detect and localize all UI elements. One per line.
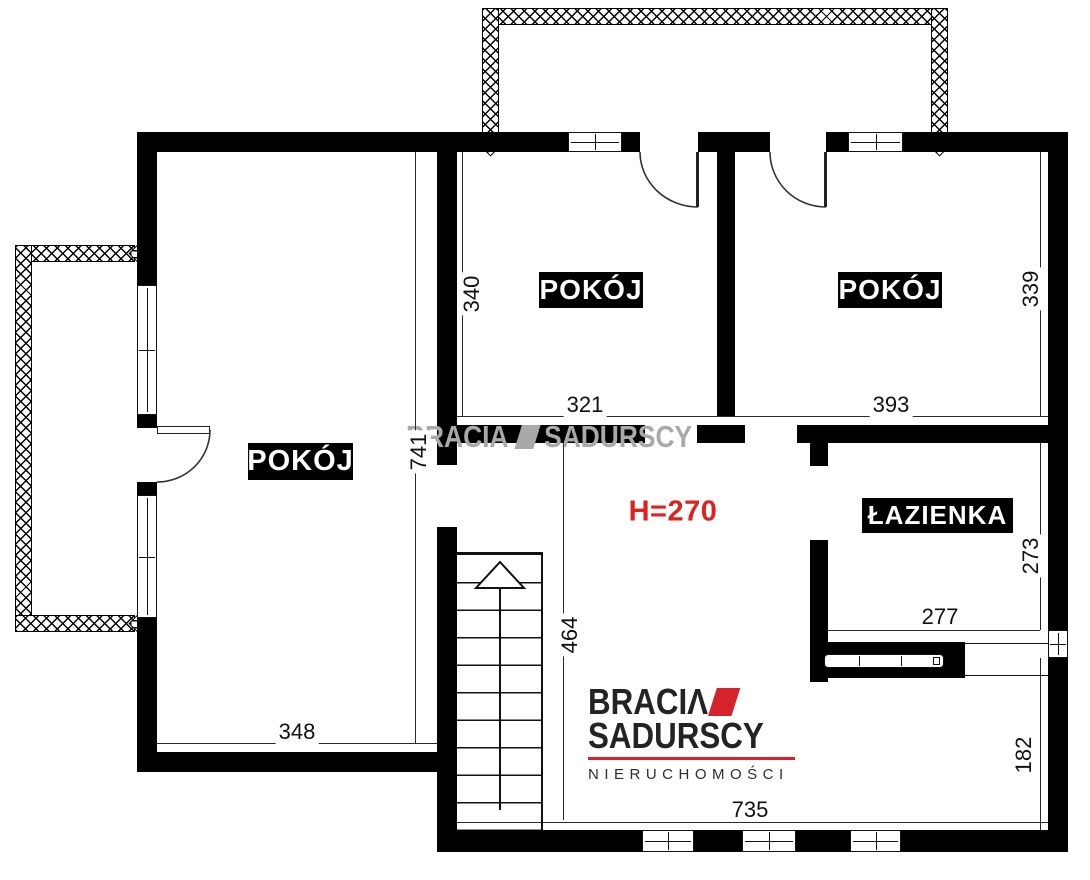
wall-hall-west-b (437, 527, 457, 852)
watermark-logo-mark (514, 425, 540, 449)
room-label-top-center: POKÓJ (539, 272, 643, 308)
dimline-277 (828, 630, 1040, 631)
brand-a-glyph: Λ (687, 686, 708, 717)
wall-right-b (1048, 658, 1068, 852)
room-label-left: POKÓJ (248, 443, 353, 480)
door-leaf-terrace-b (824, 152, 827, 207)
wall-left-a (137, 132, 157, 285)
wall-right-a (1048, 132, 1068, 630)
wall-left-c (137, 482, 157, 495)
staircase-center-line (499, 568, 501, 810)
door-arc-balcony (157, 430, 210, 482)
bathtub (824, 654, 944, 668)
terrace-hatch-top (482, 8, 948, 25)
brand-logo-rule (588, 757, 795, 760)
brand-logo-mark-icon (708, 688, 740, 716)
door-arc-terrace-b (770, 152, 826, 207)
room-label-bathroom: ŁAZIENKA (862, 498, 1013, 533)
window-top-1 (568, 132, 622, 152)
dim-273: 273 (1019, 535, 1043, 578)
opening-bottom-right (965, 643, 1048, 676)
dim-321: 321 (564, 393, 607, 417)
terrace-hatch-left (482, 8, 499, 135)
window-left-1 (137, 285, 157, 415)
door-leaf-balcony (157, 426, 210, 434)
balcony-hatch-left (15, 245, 32, 632)
brand-word2: SADURSCY (588, 720, 764, 751)
dim-464: 464 (558, 614, 582, 657)
dim-277: 277 (919, 605, 962, 629)
room-label-left-text: POKÓJ (247, 445, 354, 478)
wall-divider-tee (697, 425, 745, 443)
door-gap-terrace-a (640, 132, 698, 152)
window-bottom-1 (642, 830, 694, 852)
ceiling-height-label: H=270 (629, 496, 718, 529)
watermark-word2: SADURSCY (544, 423, 692, 451)
brand-word1: BRACI (588, 686, 687, 717)
wall-room-divider (717, 152, 735, 416)
wall-left-d (137, 618, 157, 770)
wall-bath-stub (810, 443, 828, 466)
dim-348: 348 (276, 720, 319, 744)
room-label-top-right: POKÓJ (838, 272, 942, 308)
dim-393: 393 (870, 393, 913, 417)
dim-741: 741 (407, 431, 431, 474)
door-leaf-terrace-a (696, 152, 699, 207)
bathtub-end-cap (933, 657, 940, 665)
bathtub-divider-2 (901, 656, 902, 666)
brand-tagline: NIERUCHOMOŚCI (588, 766, 795, 783)
room-label-top-center-text: POKÓJ (539, 274, 642, 306)
dimline-top-rooms (457, 416, 1048, 417)
door-gap-terrace-b (770, 132, 826, 152)
terrace-hatch-right (931, 8, 948, 135)
watermark: BRACIA SADURSCY (406, 423, 692, 451)
dimline-735 (457, 822, 1048, 823)
room-label-bathroom-text: ŁAZIENKA (868, 500, 1007, 531)
dim-339: 339 (1019, 268, 1043, 311)
brand-logo-line1: BRACIΛ (588, 686, 768, 717)
brand-logo: BRACIΛ SADURSCY NIERUCHOMOŚCI (588, 686, 795, 783)
wall-bottom-left (137, 752, 457, 772)
wall-corridor-b (797, 425, 1068, 443)
dim-735: 735 (729, 798, 772, 822)
window-bottom-3 (850, 830, 901, 852)
balcony-hatch-bottom (15, 615, 135, 632)
wall-left-b (137, 415, 157, 428)
window-bottom-2 (742, 830, 796, 852)
window-right-bath (1048, 630, 1068, 658)
dim-340: 340 (460, 273, 484, 316)
bathtub-divider-1 (859, 656, 860, 666)
dimline-182 (1040, 658, 1041, 830)
window-left-2 (137, 495, 157, 618)
door-gap-balcony (137, 428, 157, 482)
floor-plan: BRACIA SADURSCY 340 321 393 339 741 464 … (0, 0, 1090, 880)
dim-182: 182 (1012, 734, 1036, 777)
brand-logo-line2: SADURSCY (588, 720, 768, 751)
door-arc-terrace-a (640, 152, 698, 207)
balcony-hatch-top (15, 245, 135, 262)
room-label-top-right-text: POKÓJ (838, 274, 941, 306)
window-top-2 (848, 132, 903, 152)
